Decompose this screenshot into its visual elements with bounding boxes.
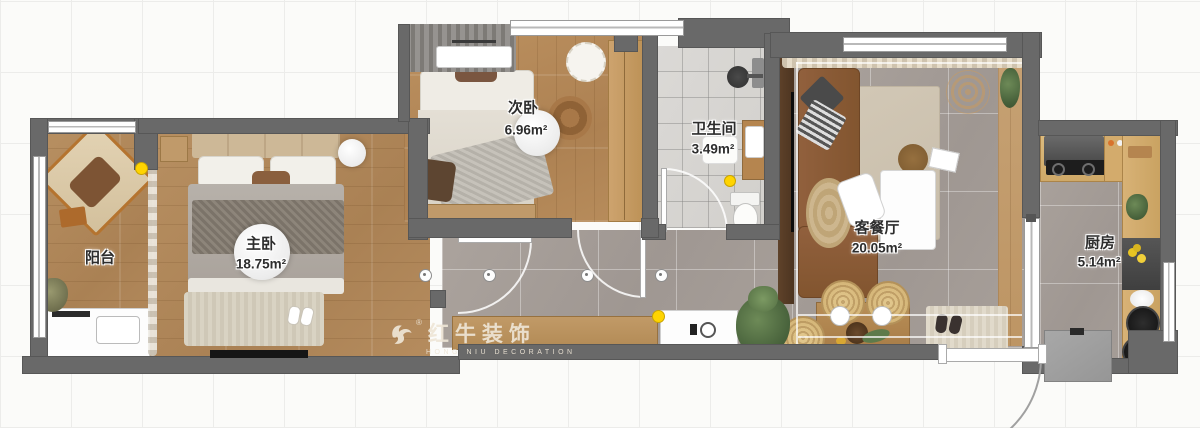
kitchen-cutting-board bbox=[1128, 146, 1152, 158]
second-bedroom-wardrobe bbox=[608, 40, 644, 222]
living-beam-line-2 bbox=[798, 336, 1022, 338]
brand-watermark: ® 红牛装饰 HONG NIU DECORATION bbox=[388, 318, 576, 356]
wall-bathroom-bottom-right bbox=[726, 224, 780, 240]
wall-second-bedroom-bottom bbox=[408, 218, 572, 238]
shoe-cabinet-decor-ring bbox=[700, 322, 716, 338]
living-ceiling-line bbox=[796, 62, 1022, 64]
living-lace-doily bbox=[946, 70, 990, 114]
second-bedroom-door-leaf bbox=[640, 230, 646, 298]
dining-plate-2 bbox=[872, 306, 892, 326]
kitchen-door-handle bbox=[1026, 214, 1036, 222]
room-area-living: 20.05m² bbox=[852, 241, 902, 256]
wall-bottom-left bbox=[22, 356, 460, 374]
wall-pier-corridor bbox=[430, 290, 446, 308]
second-bedroom-headboard-shelf bbox=[436, 46, 512, 68]
window-balcony-top bbox=[48, 121, 136, 133]
brand-name-en: HONG NIU DECORATION bbox=[426, 349, 576, 356]
balcony-cabinet-vent bbox=[52, 311, 90, 317]
master-marker-dot bbox=[135, 162, 148, 175]
entry-landing-notch bbox=[1070, 328, 1084, 335]
room-area-kitchen: 5.14m² bbox=[1078, 255, 1121, 270]
room-label-living: 客餐厅 bbox=[854, 217, 899, 238]
kitchen-jar-1 bbox=[1108, 140, 1114, 146]
room-label-bathroom: 卫生间 bbox=[691, 118, 736, 139]
wall-bathroom-right bbox=[764, 33, 780, 235]
entry-landing-block bbox=[1044, 330, 1112, 382]
wall-pier-bedroom-door bbox=[641, 218, 659, 238]
corridor-marker-dot bbox=[652, 310, 665, 323]
front-door-frame-left bbox=[938, 344, 947, 364]
cooktop-burner-2 bbox=[1082, 163, 1095, 176]
bull-logo-icon bbox=[388, 320, 414, 346]
kitchen-lemon-3 bbox=[1133, 244, 1141, 252]
room-label-second: 次卧 bbox=[508, 97, 538, 118]
wall-master-top bbox=[138, 118, 430, 134]
window-kitchen-right bbox=[1163, 262, 1175, 342]
window-left bbox=[33, 156, 46, 338]
master-tv bbox=[210, 350, 308, 358]
room-area-master: 18.75m² bbox=[236, 257, 286, 272]
window-living-top bbox=[843, 37, 1007, 52]
shower-arm bbox=[747, 74, 763, 78]
second-bed-footboard bbox=[418, 204, 536, 219]
room-area-bathroom: 3.49m² bbox=[692, 142, 735, 157]
balcony-box bbox=[59, 206, 87, 227]
master-ball-lamp bbox=[338, 139, 366, 167]
bathroom-marker-dot bbox=[724, 175, 736, 187]
front-door-arc bbox=[944, 358, 1042, 428]
room-label-kitchen: 厨房 bbox=[1085, 232, 1115, 253]
front-door-leaf bbox=[944, 348, 1042, 362]
second-bedroom-stool bbox=[566, 42, 606, 82]
bathroom-door-leaf bbox=[661, 168, 667, 232]
dining-plate-1 bbox=[830, 306, 850, 326]
wall-kitchen-top bbox=[1038, 120, 1178, 136]
tv-screen bbox=[791, 92, 794, 232]
cooktop-burner-1 bbox=[1052, 163, 1065, 176]
corridor-ceiling-light-4 bbox=[655, 269, 668, 282]
shower-fixture bbox=[752, 58, 764, 88]
wall-bathroom-left bbox=[642, 33, 658, 232]
corridor-ceiling-light-1 bbox=[419, 269, 432, 282]
window-second-bedroom-top bbox=[510, 20, 684, 36]
master-nightstand-left bbox=[160, 136, 188, 162]
balcony-sink bbox=[96, 316, 140, 344]
kitchen-lemon-2 bbox=[1137, 254, 1146, 263]
living-beam-line-1 bbox=[798, 314, 1022, 316]
wall-second-bedroom-left bbox=[398, 24, 410, 122]
room-area-second: 6.96m² bbox=[505, 123, 548, 138]
bath-towel bbox=[745, 126, 764, 158]
floor-plan-canvas: 阳台 主卧 18.75m² 次卧 6.96m² 卫生间 3.49m² 客餐厅 2… bbox=[0, 0, 1200, 428]
living-desk bbox=[880, 170, 936, 250]
front-door-frame-right bbox=[1038, 344, 1047, 364]
shoe-cabinet-decor-item bbox=[690, 324, 697, 335]
master-headboard bbox=[192, 132, 340, 158]
room-label-master: 主卧 bbox=[246, 233, 276, 254]
shower-head bbox=[727, 66, 749, 88]
kitchen-sliding-door bbox=[1024, 218, 1040, 348]
second-bedroom-wardrobe-seam bbox=[624, 40, 625, 220]
kitchen-appliance-dark bbox=[1122, 238, 1160, 290]
room-label-balcony: 阳台 bbox=[85, 247, 115, 268]
second-bedroom-shelf-rail bbox=[452, 40, 496, 43]
brand-name: 红牛装饰 bbox=[428, 318, 536, 348]
registered-mark: ® bbox=[416, 318, 422, 327]
living-partition-line bbox=[796, 62, 798, 346]
